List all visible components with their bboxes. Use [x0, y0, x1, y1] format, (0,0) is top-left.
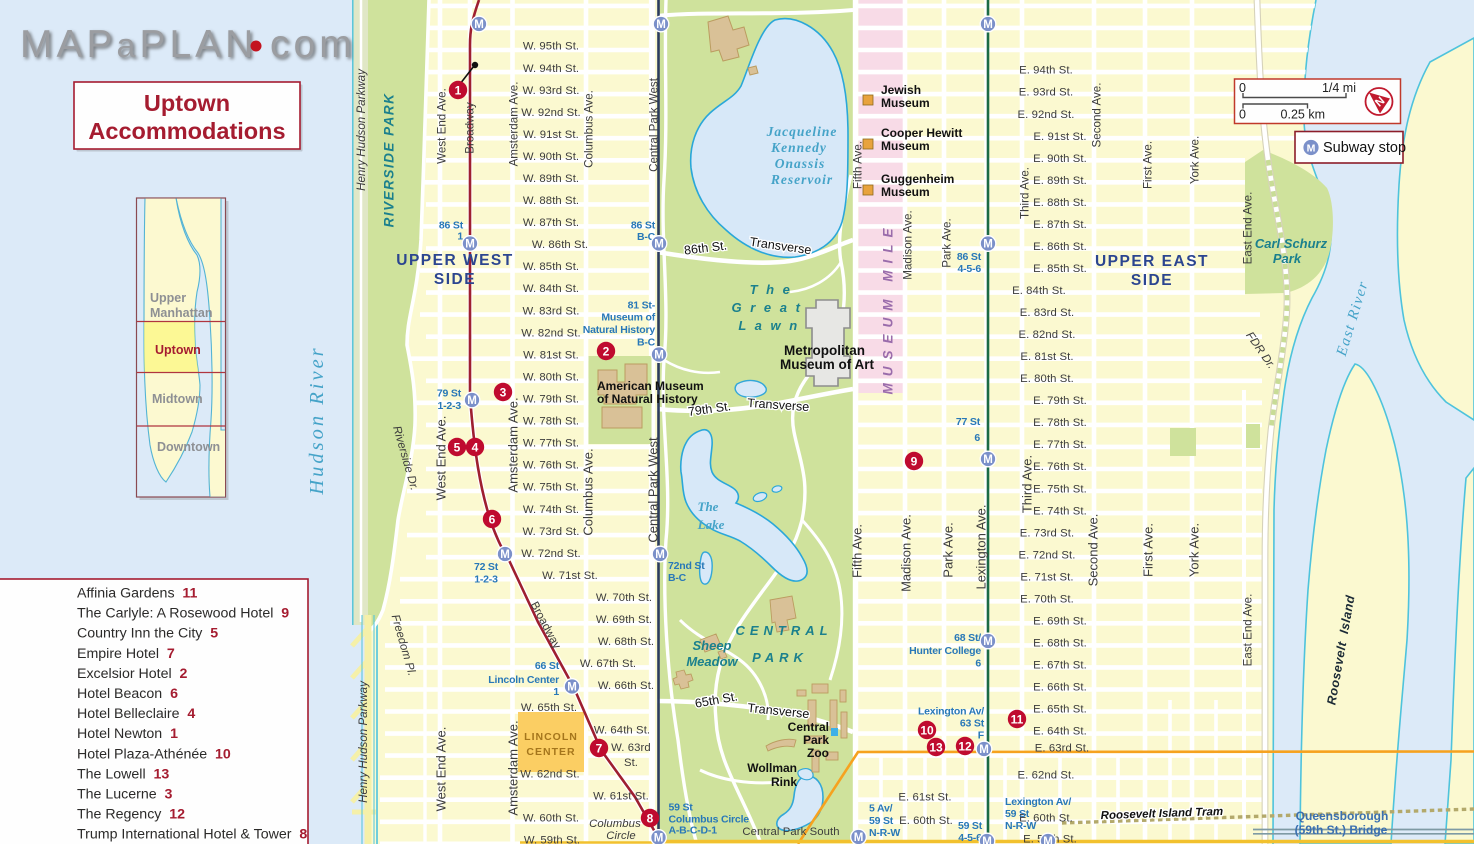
svg-text:1/4 mi: 1/4 mi	[1322, 81, 1356, 95]
svg-text:E. 72nd St.: E. 72nd St.	[1019, 549, 1076, 561]
svg-text:12: 12	[958, 740, 972, 754]
svg-text:The Carlyle: A Rosewood Hotel: The Carlyle: A Rosewood Hotel 9	[77, 606, 289, 622]
svg-text:com: com	[270, 23, 356, 66]
svg-text:E. 73rd St.: E. 73rd St.	[1020, 527, 1074, 539]
svg-text:1-2-3: 1-2-3	[437, 400, 461, 412]
svg-text:E. 76th St.: E. 76th St.	[1033, 461, 1087, 473]
svg-text:W. 73rd St.: W. 73rd St.	[523, 526, 580, 538]
svg-text:E. 61st St.: E. 61st St.	[898, 792, 951, 804]
svg-text:Museum of Art: Museum of Art	[780, 357, 875, 372]
svg-text:E. 70th St.: E. 70th St.	[1020, 593, 1074, 605]
svg-text:N-R-W: N-R-W	[869, 827, 900, 839]
svg-text:E. 88th St.: E. 88th St.	[1033, 197, 1087, 209]
svg-text:West End Ave.: West End Ave.	[435, 88, 448, 164]
svg-text:Lexington Av/: Lexington Av/	[918, 706, 984, 718]
svg-text:E. 66th St.: E. 66th St.	[1033, 682, 1087, 694]
svg-text:B-C: B-C	[637, 337, 656, 349]
svg-text:10: 10	[920, 724, 934, 738]
svg-text:Uptown: Uptown	[144, 90, 230, 116]
svg-text:Amsterdam Ave.: Amsterdam Ave.	[505, 397, 520, 492]
svg-text:E. 92nd St.: E. 92nd St.	[1018, 109, 1075, 121]
svg-text:E. 93rd St.: E. 93rd St.	[1019, 87, 1073, 99]
svg-text:York Ave.: York Ave.	[1186, 523, 1201, 577]
svg-text:W. 79th St.: W. 79th St.	[523, 394, 579, 406]
svg-text:M: M	[654, 239, 664, 251]
svg-text:5: 5	[454, 441, 461, 455]
svg-text:Columbus Ave.: Columbus Ave.	[580, 448, 595, 535]
svg-text:M: M	[465, 239, 475, 251]
svg-text:Museum: Museum	[881, 139, 930, 153]
svg-text:Upper: Upper	[150, 291, 186, 305]
svg-text:W. 77th St.: W. 77th St.	[523, 438, 579, 450]
svg-text:The Lowell 13: The Lowell 13	[77, 766, 169, 782]
svg-text:Amsterdam Ave.: Amsterdam Ave.	[507, 82, 520, 167]
svg-text:E. 80th St.: E. 80th St.	[1020, 373, 1074, 385]
svg-text:UPPER EAST: UPPER EAST	[1095, 253, 1209, 270]
svg-text:E. 83rd St.: E. 83rd St.	[1020, 307, 1074, 319]
svg-text:First Ave.: First Ave.	[1141, 141, 1154, 189]
svg-text:SIDE: SIDE	[434, 271, 476, 288]
svg-text:A-B-C-D-1: A-B-C-D-1	[669, 825, 718, 837]
svg-text:M: M	[655, 549, 665, 561]
svg-text:72 St: 72 St	[474, 561, 499, 573]
svg-text:Central Park South: Central Park South	[742, 826, 839, 838]
svg-text:W. 91st St.: W. 91st St.	[523, 129, 579, 141]
svg-text:Hotel Plaza-Athénée 10: Hotel Plaza-Athénée 10	[77, 746, 231, 762]
svg-text:M: M	[474, 19, 484, 31]
svg-text:Park Ave.: Park Ave.	[940, 522, 955, 577]
svg-text:E. 87th St.: E. 87th St.	[1033, 219, 1087, 231]
svg-text:Third Ave.: Third Ave.	[1019, 455, 1034, 513]
svg-text:4: 4	[472, 441, 479, 455]
svg-text:Excelsior Hotel 2: Excelsior Hotel 2	[77, 666, 188, 682]
svg-text:W. 68th St.: W. 68th St.	[598, 636, 654, 648]
svg-text:M: M	[983, 454, 993, 466]
svg-text:59 St: 59 St	[958, 820, 983, 832]
svg-text:Carl Schurz: Carl Schurz	[1255, 236, 1328, 251]
svg-text:86 St: 86 St	[631, 220, 656, 232]
svg-text:M: M	[1043, 836, 1053, 844]
svg-text:Henry Hudson Parkway: Henry Hudson Parkway	[355, 68, 368, 191]
svg-text:Madison Ave.: Madison Ave.	[901, 210, 914, 279]
svg-text:UPPER WEST: UPPER WEST	[396, 252, 513, 269]
svg-text:First Ave.: First Ave.	[1140, 523, 1155, 577]
svg-text:Amsterdam Ave.: Amsterdam Ave.	[505, 720, 520, 815]
svg-text:Museum of: Museum of	[601, 312, 655, 324]
svg-text:E. 85th St.: E. 85th St.	[1033, 263, 1087, 275]
svg-text:1: 1	[455, 84, 462, 98]
svg-text:11: 11	[1011, 713, 1024, 727]
svg-text:Lincoln Center: Lincoln Center	[488, 674, 559, 686]
svg-text:0.25 km: 0.25 km	[1281, 108, 1325, 122]
svg-text:Trump International Hotel & To: Trump International Hotel & Tower 8	[77, 827, 307, 843]
svg-text:W. 61st St.: W. 61st St.	[593, 790, 649, 802]
svg-text:63 St: 63 St	[960, 718, 985, 730]
svg-text:E. 94th St.: E. 94th St.	[1019, 65, 1073, 77]
svg-text:6: 6	[489, 513, 496, 527]
svg-text:72nd St: 72nd St	[668, 560, 705, 572]
svg-text:American Museum: American Museum	[597, 379, 704, 393]
svg-text:79 St: 79 St	[437, 388, 462, 400]
svg-text:The Lucerne 3: The Lucerne 3	[77, 787, 173, 803]
svg-text:77 St: 77 St	[956, 416, 981, 428]
svg-text:Jacqueline: Jacqueline	[766, 124, 838, 139]
svg-text:Jewish: Jewish	[881, 83, 921, 97]
svg-text:M: M	[979, 744, 989, 756]
svg-text:W. 92nd St.: W. 92nd St.	[521, 107, 581, 119]
svg-text:L a w n: L a w n	[738, 318, 799, 333]
svg-text:66 St: 66 St	[535, 660, 560, 672]
svg-text:Third Ave.: Third Ave.	[1018, 167, 1031, 219]
svg-text:East End Ave.: East End Ave.	[1241, 192, 1254, 265]
svg-text:The Regency 12: The Regency 12	[77, 807, 185, 823]
svg-text:RIVERSIDE PARK: RIVERSIDE PARK	[382, 93, 397, 228]
svg-text:M: M	[654, 350, 664, 362]
svg-text:Fifth Ave.: Fifth Ave.	[849, 524, 864, 578]
svg-text:Hotel Newton 1: Hotel Newton 1	[77, 726, 178, 742]
svg-text:The: The	[698, 499, 719, 514]
svg-text:Hudson River: Hudson River	[306, 345, 328, 495]
svg-text:Guggenheim: Guggenheim	[881, 172, 954, 186]
svg-text:M: M	[567, 682, 577, 694]
svg-text:Reservoir: Reservoir	[770, 172, 833, 187]
svg-text:4-5-6: 4-5-6	[957, 263, 981, 275]
svg-text:1: 1	[553, 686, 559, 698]
svg-text:W. 60th St.: W. 60th St.	[523, 813, 579, 825]
svg-text:81 St-: 81 St-	[628, 300, 656, 312]
svg-text:W. 70th St.: W. 70th St.	[596, 592, 652, 604]
svg-text:W. 74th St.: W. 74th St.	[523, 504, 579, 516]
svg-text:E. 67th St.: E. 67th St.	[1033, 660, 1087, 672]
svg-text:W. 71st St.: W. 71st St.	[542, 570, 598, 582]
svg-text:Museum: Museum	[881, 96, 930, 110]
svg-text:M: M	[656, 19, 666, 31]
svg-text:Circle: Circle	[606, 830, 635, 842]
svg-text:West End Ave.: West End Ave.	[433, 416, 448, 501]
svg-text:M: M	[654, 833, 664, 844]
svg-text:St.: St.	[624, 757, 638, 769]
svg-text:Hotel Beacon 6: Hotel Beacon 6	[77, 686, 178, 702]
svg-text:M: M	[467, 395, 477, 407]
svg-text:Metropolitan: Metropolitan	[784, 343, 865, 358]
svg-text:W. 72nd St.: W. 72nd St.	[521, 548, 581, 560]
svg-text:W. 64th St.: W. 64th St.	[594, 724, 650, 736]
svg-text:M: M	[983, 19, 993, 31]
svg-text:5 Av/: 5 Av/	[869, 803, 893, 815]
svg-text:M: M	[983, 636, 993, 648]
svg-text:W. 86th St.: W. 86th St.	[532, 239, 588, 251]
svg-text:Central Park West: Central Park West	[645, 437, 660, 543]
svg-text:Wollman: Wollman	[747, 761, 797, 775]
svg-text:E. 90th St.: E. 90th St.	[1033, 153, 1087, 165]
svg-text:Park Ave.: Park Ave.	[940, 218, 953, 267]
svg-text:W. 88th St.: W. 88th St.	[523, 195, 579, 207]
svg-text:W. 81st St.: W. 81st St.	[523, 349, 579, 361]
svg-text:W. 85th St.: W. 85th St.	[523, 261, 579, 273]
svg-text:Accommodations: Accommodations	[88, 118, 285, 144]
svg-text:E. 89th St.: E. 89th St.	[1033, 175, 1087, 187]
svg-text:E. 79th St.: E. 79th St.	[1033, 395, 1087, 407]
svg-text:W. 82nd St.: W. 82nd St.	[521, 327, 581, 339]
svg-text:Lake: Lake	[697, 517, 725, 532]
svg-text:Central Park West: Central Park West	[647, 77, 660, 172]
svg-text:Lexington Ave.: Lexington Ave.	[973, 504, 988, 589]
svg-text:E. 74th St.: E. 74th St.	[1033, 505, 1087, 517]
svg-text:Country Inn the City 5: Country Inn the City 5	[77, 626, 218, 642]
svg-text:York Ave.: York Ave.	[1188, 136, 1201, 184]
svg-text:1-2-3: 1-2-3	[474, 574, 498, 586]
svg-text:E. 68th St.: E. 68th St.	[1033, 638, 1087, 650]
svg-text:CENTER: CENTER	[526, 746, 575, 758]
svg-text:Museum: Museum	[881, 185, 930, 199]
svg-text:W. 84th St.: W. 84th St.	[523, 283, 579, 295]
svg-text:M: M	[854, 832, 864, 844]
svg-text:CENTRAL: CENTRAL	[735, 623, 832, 638]
svg-text:Empire Hotel 7: Empire Hotel 7	[77, 646, 175, 662]
svg-text:E. 60th St.: E. 60th St.	[899, 815, 953, 827]
svg-text:Fifth Ave.: Fifth Ave.	[851, 141, 864, 189]
svg-text:Zoo: Zoo	[807, 746, 829, 760]
svg-text:86 St: 86 St	[957, 251, 982, 263]
svg-text:W. 66th St.: W. 66th St.	[598, 680, 654, 692]
svg-text:Hotel Belleclaire 4: Hotel Belleclaire 4	[77, 706, 195, 722]
svg-text:G r e a t: G r e a t	[732, 300, 803, 315]
svg-text:Broadway: Broadway	[463, 102, 476, 154]
svg-text:8: 8	[647, 812, 654, 826]
svg-text:4-5-6: 4-5-6	[958, 832, 982, 844]
svg-text:M: M	[983, 239, 993, 251]
svg-text:59 St: 59 St	[669, 802, 694, 814]
svg-text:W. 95th St.: W. 95th St.	[523, 41, 579, 53]
svg-text:E. 71st St.: E. 71st St.	[1020, 571, 1073, 583]
svg-text:F: F	[978, 730, 985, 742]
svg-text:Hunter College: Hunter College	[909, 645, 981, 657]
svg-text:M: M	[982, 836, 992, 844]
svg-text:Henry Hudson Parkway: Henry Hudson Parkway	[357, 680, 370, 803]
svg-text:Onassis: Onassis	[775, 156, 826, 171]
svg-text:E. 91st St.: E. 91st St.	[1033, 131, 1086, 143]
svg-text:0: 0	[1239, 81, 1246, 95]
svg-text:W. 63rd: W. 63rd	[611, 742, 651, 754]
svg-text:Subway stop: Subway stop	[1323, 140, 1406, 156]
svg-text:MAPaPLAN: MAPaPLAN	[20, 23, 257, 66]
svg-text:B-C: B-C	[668, 572, 687, 584]
svg-text:W. 76th St.: W. 76th St.	[523, 460, 579, 472]
svg-text:Cooper Hewitt: Cooper Hewitt	[881, 126, 962, 140]
svg-text:LINCOLN: LINCOLN	[524, 731, 578, 743]
svg-text:M: M	[500, 549, 510, 561]
svg-text:7: 7	[596, 742, 603, 756]
svg-text:0: 0	[1239, 108, 1246, 122]
svg-text:W. 62nd St.: W. 62nd St.	[520, 768, 580, 780]
svg-text:Uptown: Uptown	[155, 343, 201, 357]
svg-text:13: 13	[929, 741, 943, 755]
svg-text:Downtown: Downtown	[157, 440, 220, 454]
svg-text:M: M	[1307, 143, 1316, 155]
svg-text:Midtown: Midtown	[152, 392, 203, 406]
svg-text:West End Ave.: West End Ave.	[433, 727, 448, 812]
svg-text:E. 84th St.: E. 84th St.	[1012, 285, 1066, 297]
svg-text:of Natural History: of Natural History	[597, 392, 698, 406]
svg-text:Queensborough: Queensborough	[1296, 809, 1389, 823]
svg-text:6: 6	[974, 432, 980, 444]
svg-text:68 St/: 68 St/	[954, 632, 981, 644]
svg-text:Meadow: Meadow	[686, 654, 738, 669]
svg-text:Natural History: Natural History	[583, 324, 656, 336]
svg-text:E. 69th St.: E. 69th St.	[1033, 616, 1087, 628]
svg-text:MUSEUM MILE: MUSEUM MILE	[881, 222, 896, 395]
svg-text:59 St: 59 St	[869, 815, 894, 827]
svg-text:Central: Central	[788, 720, 829, 734]
svg-text:W. 83rd St.: W. 83rd St.	[523, 305, 580, 317]
svg-text:W. 69th St.: W. 69th St.	[596, 614, 652, 626]
svg-text:W. 90th St.: W. 90th St.	[523, 151, 579, 163]
svg-text:W. 59th St.: W. 59th St.	[524, 835, 580, 844]
svg-text:Columbus Ave.: Columbus Ave.	[582, 90, 595, 168]
svg-text:Madison Ave.: Madison Ave.	[898, 514, 913, 592]
svg-text:9: 9	[911, 455, 918, 469]
svg-text:Second Ave.: Second Ave.	[1090, 83, 1103, 148]
svg-text:Sheep: Sheep	[692, 638, 731, 653]
svg-text:N-R-W: N-R-W	[1005, 820, 1036, 832]
svg-text:W. 93rd St.: W. 93rd St.	[523, 85, 580, 97]
svg-text:6: 6	[975, 658, 981, 670]
svg-text:E. 62nd St.: E. 62nd St.	[1018, 770, 1075, 782]
svg-text:Park: Park	[1273, 251, 1302, 266]
svg-text:E. 78th St.: E. 78th St.	[1033, 417, 1087, 429]
svg-text:W. 78th St.: W. 78th St.	[523, 416, 579, 428]
svg-text:E. 77th St.: E. 77th St.	[1033, 439, 1087, 451]
svg-text:E. 65th St.: E. 65th St.	[1033, 704, 1087, 716]
svg-text:Columbus: Columbus	[589, 818, 641, 830]
svg-text:E. 82nd St.: E. 82nd St.	[1019, 329, 1076, 341]
svg-text:E. 64th St.: E. 64th St.	[1033, 726, 1087, 738]
svg-text:T h e: T h e	[750, 282, 793, 297]
svg-text:W. 80th St.: W. 80th St.	[523, 371, 579, 383]
svg-text:Affinia Gardens 11: Affinia Gardens 11	[77, 586, 198, 602]
svg-text:E. 75th St.: E. 75th St.	[1033, 483, 1087, 495]
svg-text:W. 65th St.: W. 65th St.	[521, 702, 577, 714]
svg-text:W. 89th St.: W. 89th St.	[523, 173, 579, 185]
svg-text:SIDE: SIDE	[1131, 272, 1173, 289]
svg-text:(59th St.) Bridge: (59th St.) Bridge	[1295, 823, 1388, 837]
svg-text:Second Ave.: Second Ave.	[1085, 514, 1100, 587]
svg-text:Manhattan: Manhattan	[150, 306, 213, 320]
svg-text:East End Ave.: East End Ave.	[1241, 594, 1254, 667]
svg-text:E. 86th St.: E. 86th St.	[1033, 241, 1087, 253]
svg-text:Kennedy: Kennedy	[770, 140, 827, 155]
svg-text:Park: Park	[803, 733, 829, 747]
svg-text:W. 87th St.: W. 87th St.	[523, 217, 579, 229]
svg-text:Rink: Rink	[771, 775, 797, 789]
svg-text:2: 2	[603, 345, 610, 359]
svg-text:3: 3	[500, 386, 507, 400]
svg-text:E. 63rd St.: E. 63rd St.	[1035, 743, 1089, 755]
svg-text:59 St: 59 St	[1005, 808, 1030, 820]
svg-text:PARK: PARK	[752, 650, 808, 665]
svg-text:W. 67th St.: W. 67th St.	[580, 658, 636, 670]
svg-text:W. 75th St.: W. 75th St.	[523, 482, 579, 494]
svg-text:W. 94th St.: W. 94th St.	[523, 63, 579, 75]
svg-text:E. 81st St.: E. 81st St.	[1020, 351, 1073, 363]
svg-text:Lexington Av/: Lexington Av/	[1005, 796, 1071, 808]
